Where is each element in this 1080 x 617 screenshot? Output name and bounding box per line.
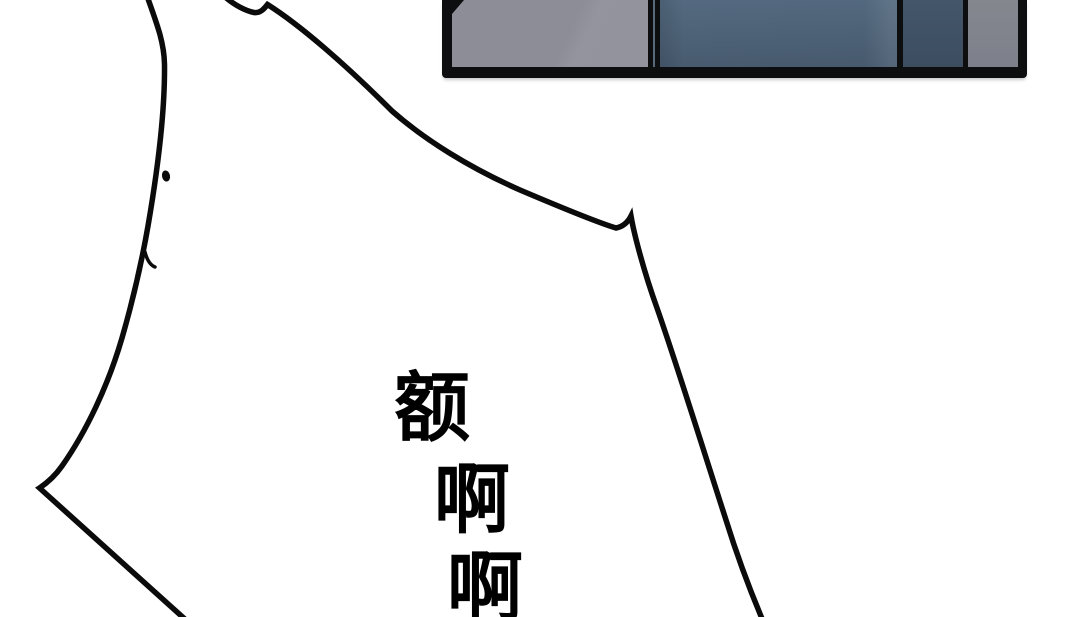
cabinet-panel-blue	[660, 0, 897, 67]
cabinet-panel-gray-left	[452, 0, 648, 67]
flick-stroke	[145, 252, 155, 267]
cabinet-panel-gray-right	[968, 0, 1018, 67]
left-contour-line	[40, 0, 188, 617]
sfx-text-ah-1: 啊	[430, 460, 514, 544]
figure-line-drawing	[0, 0, 1080, 617]
cabinet-double-divider	[648, 0, 660, 67]
cabinet-panel-navy	[903, 0, 963, 67]
sfx-text-e: 额	[390, 368, 474, 452]
ink-dot	[161, 170, 171, 183]
cabinet-top-edge	[442, 0, 1027, 78]
sfx-text-ah-2: 啊	[443, 548, 527, 617]
comic-panel: 额 啊 啊	[0, 0, 1080, 617]
